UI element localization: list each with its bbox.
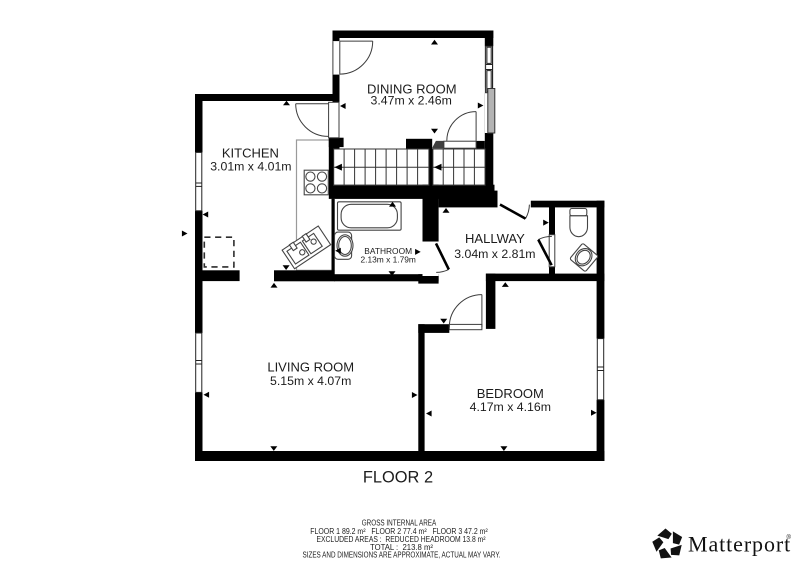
svg-text:FLOOR 2: FLOOR 2 — [363, 469, 433, 487]
svg-text:HALLWAY: HALLWAY — [465, 231, 525, 246]
svg-text:BEDROOM: BEDROOM — [477, 386, 544, 401]
svg-text:3.47m x 2.46m: 3.47m x 2.46m — [371, 93, 452, 107]
svg-text:3.01m x 4.01m: 3.01m x 4.01m — [210, 160, 291, 174]
svg-text:5.15m x 4.07m: 5.15m x 4.07m — [270, 374, 351, 388]
svg-text:Matterport: Matterport — [688, 532, 791, 557]
svg-text:4.17m x 4.16m: 4.17m x 4.16m — [470, 400, 551, 414]
svg-text:3.04m x 2.81m: 3.04m x 2.81m — [454, 247, 535, 261]
svg-text:LIVING ROOM: LIVING ROOM — [267, 359, 354, 374]
svg-text:®: ® — [787, 534, 792, 541]
svg-text:2.13m x 1.79m: 2.13m x 1.79m — [360, 255, 415, 265]
svg-text:SIZES AND DIMENSIONS ARE APPRO: SIZES AND DIMENSIONS ARE APPROXIMATE, AC… — [303, 550, 501, 559]
svg-text:KITCHEN: KITCHEN — [222, 146, 279, 161]
